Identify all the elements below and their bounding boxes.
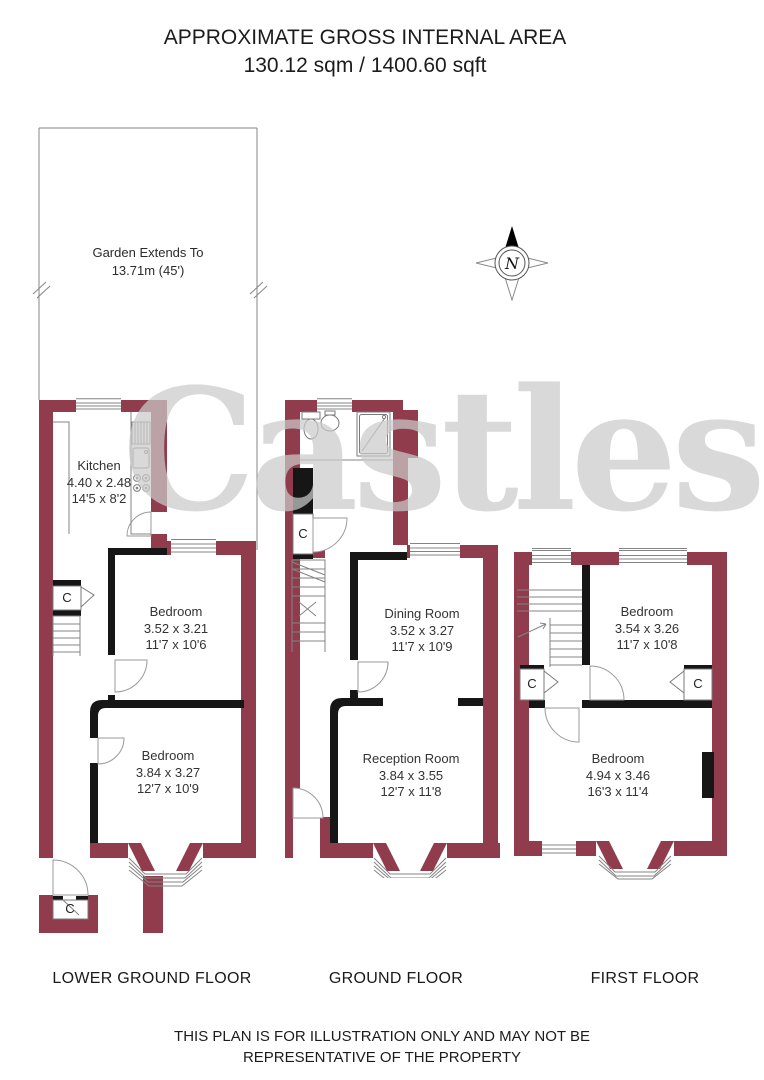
- closet-door-upper: [81, 587, 94, 607]
- room-size-metric: 4.40 x 2.48: [39, 475, 159, 492]
- shower-icon: [357, 412, 390, 456]
- garden-label-line1: Garden Extends To: [38, 244, 258, 262]
- title-line1: APPROXIMATE GROSS INTERNAL AREA: [65, 24, 665, 52]
- bedroom1-door-arc: [115, 660, 147, 692]
- dining-room-label: Dining Room 3.52 x 3.27 11'7 x 10'9: [362, 606, 482, 656]
- room-size-metric: 4.94 x 3.46: [558, 768, 678, 785]
- ff-chimney-breast: [702, 752, 714, 798]
- closet-door-left: [544, 671, 558, 693]
- room-name: Kitchen: [39, 458, 159, 475]
- floor-plan-page: APPROXIMATE GROSS INTERNAL AREA 130.12 s…: [0, 0, 764, 1080]
- room-size-metric: 3.52 x 3.27: [362, 623, 482, 640]
- room-name: Bedroom: [587, 604, 707, 621]
- room-size-imperial: 11'7 x 10'6: [116, 637, 236, 654]
- garden-break-mark-left: [33, 282, 50, 298]
- disclaimer: THIS PLAN IS FOR ILLUSTRATION ONLY AND M…: [82, 1026, 682, 1068]
- gf-closet-label: C: [295, 527, 311, 541]
- room-size-imperial: 16'3 x 11'4: [558, 784, 678, 801]
- closet-door-arc: [313, 518, 347, 552]
- first-floor-plan: [512, 540, 736, 880]
- ff-bedroom2-door-arc: [545, 708, 579, 742]
- page-title: APPROXIMATE GROSS INTERNAL AREA 130.12 s…: [65, 24, 665, 80]
- room-size-imperial: 12'7 x 11'8: [351, 784, 471, 801]
- room-size-imperial: 14'5 x 8'2: [39, 491, 159, 508]
- closet-door-right: [670, 671, 684, 693]
- sink-drainer-icon: [132, 422, 150, 444]
- room-size-metric: 3.52 x 3.21: [116, 621, 236, 638]
- room-name: Bedroom: [558, 751, 678, 768]
- ground-floor-title: GROUND FLOOR: [276, 970, 516, 988]
- compass-north-label: N: [504, 254, 520, 273]
- lgf-bedroom1-label: Bedroom 3.52 x 3.21 11'7 x 10'6: [116, 604, 236, 654]
- lgf-closet-label-upper: C: [59, 591, 75, 605]
- garden-label-line2: 13.71m (45'): [38, 262, 258, 280]
- ff-closet-label-right: C: [690, 677, 706, 691]
- disclaimer-line2: REPRESENTATIVE OF THE PROPERTY: [82, 1047, 682, 1068]
- gf-chimney-breast: [293, 468, 313, 510]
- dining-door-arc: [358, 662, 388, 692]
- stairs-cross-mark: [299, 602, 316, 616]
- room-name: Reception Room: [351, 751, 471, 768]
- lgf-closet-label-lower: C: [62, 902, 78, 916]
- room-size-imperial: 11'7 x 10'9: [362, 639, 482, 656]
- title-line2: 130.12 sqm / 1400.60 sqft: [65, 52, 665, 80]
- room-size-imperial: 11'7 x 10'8: [587, 637, 707, 654]
- room-size-metric: 3.54 x 3.26: [587, 621, 707, 638]
- lgf-stairs: [53, 616, 80, 656]
- lower-ground-floor-title: LOWER GROUND FLOOR: [32, 970, 272, 988]
- garden-label: Garden Extends To 13.71m (45'): [38, 244, 258, 280]
- room-size-metric: 3.84 x 3.55: [351, 768, 471, 785]
- reception-room-label: Reception Room 3.84 x 3.55 12'7 x 11'8: [351, 751, 471, 801]
- disclaimer-line1: THIS PLAN IS FOR ILLUSTRATION ONLY AND M…: [82, 1026, 682, 1047]
- ff-bedroom2-label: Bedroom 4.94 x 3.46 16'3 x 11'4: [558, 751, 678, 801]
- room-name: Bedroom: [116, 604, 236, 621]
- first-floor-title: FIRST FLOOR: [525, 970, 764, 988]
- room-name: Dining Room: [362, 606, 482, 623]
- lgf-bedroom2-label: Bedroom 3.84 x 3.27 12'7 x 10'9: [108, 748, 228, 798]
- toilet-icon: [302, 412, 320, 439]
- ff-closet-label-left: C: [524, 677, 540, 691]
- gf-bathroom-fixtures: [300, 411, 393, 460]
- garden-break-mark-right: [250, 282, 267, 298]
- kitchen-label: Kitchen 4.40 x 2.48 14'5 x 8'2: [39, 458, 159, 508]
- front-door-arc: [53, 860, 88, 895]
- front-door-arc: [293, 788, 323, 818]
- room-size-metric: 3.84 x 3.27: [108, 765, 228, 782]
- room-size-imperial: 12'7 x 10'9: [108, 781, 228, 798]
- ff-bedroom1-label: Bedroom 3.54 x 3.26 11'7 x 10'8: [587, 604, 707, 654]
- compass-rose: N: [470, 218, 554, 302]
- ff-bedroom1-door-arc: [590, 666, 624, 700]
- room-name: Bedroom: [108, 748, 228, 765]
- basin-icon: [321, 411, 339, 431]
